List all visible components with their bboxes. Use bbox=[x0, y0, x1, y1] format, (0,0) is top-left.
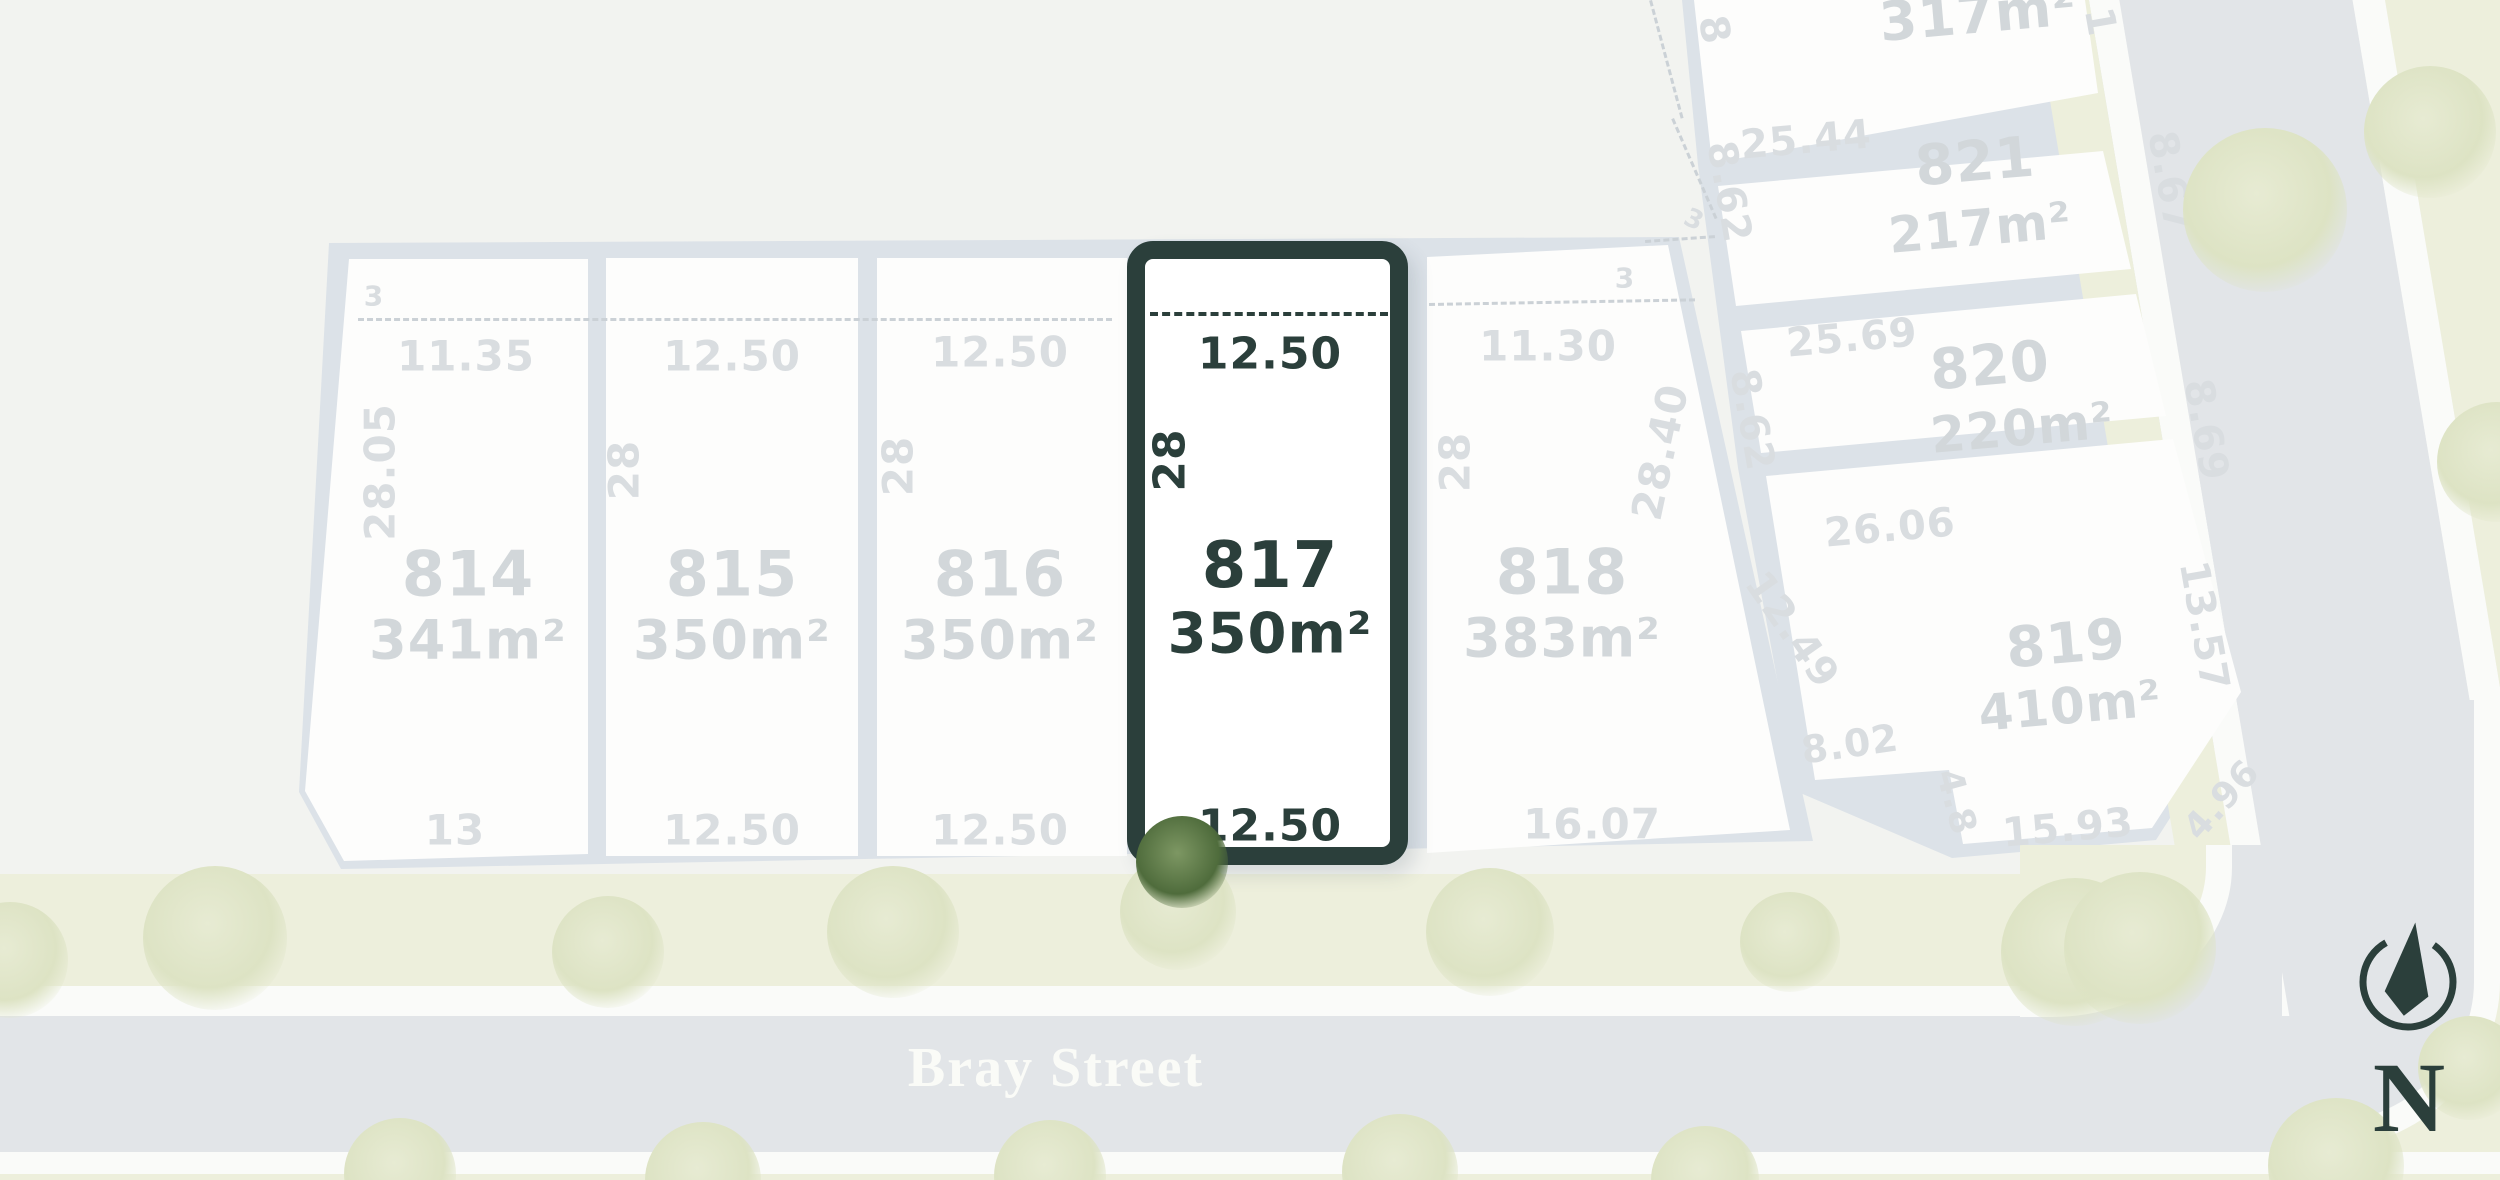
lot-815-number: 815 bbox=[666, 538, 798, 611]
lot-818-front-dim: 16.07 bbox=[1523, 800, 1661, 849]
lot-815-front-dim: 12.50 bbox=[663, 806, 801, 855]
lot-815-side-dim: 28 bbox=[600, 440, 649, 500]
tree-icon bbox=[1136, 816, 1228, 908]
lot-816-top-dim: 12.50 bbox=[931, 328, 1069, 377]
lot-815-top-dim: 12.50 bbox=[663, 332, 801, 381]
lot-821-number: 821 bbox=[1912, 124, 2037, 199]
tree-icon bbox=[2364, 66, 2496, 198]
setback-line-814-816 bbox=[358, 318, 1112, 321]
lot-821-setback-dim: 3 bbox=[1679, 202, 1709, 237]
lot-818-setback-dim: 3 bbox=[1615, 262, 1635, 295]
tree-icon bbox=[552, 896, 664, 1008]
lot-814-area: 341m² bbox=[369, 609, 567, 672]
lot-816-area: 350m² bbox=[901, 609, 1099, 672]
lot-817-area: 350m² bbox=[1168, 602, 1373, 667]
lot-817-side-dim: 28 bbox=[1145, 428, 1196, 491]
lot-820-number: 820 bbox=[1927, 328, 2052, 403]
tree-icon bbox=[2183, 128, 2347, 292]
lot-814-number: 814 bbox=[402, 538, 534, 611]
lot-814-setback-dim: 3 bbox=[364, 280, 384, 313]
lot-817-number: 817 bbox=[1202, 529, 1339, 603]
setback-line-partial-lot bbox=[1649, 0, 1683, 119]
lot-816-side-dim: 28 bbox=[874, 436, 923, 496]
lot-815-area: 350m² bbox=[633, 609, 831, 672]
lot-814-front-dim: 13 bbox=[425, 806, 485, 855]
tree-icon bbox=[1426, 868, 1554, 996]
tree-icon bbox=[827, 866, 959, 998]
north-compass bbox=[2350, 916, 2466, 1038]
street-name-label: Bray Street bbox=[846, 1036, 1266, 1100]
lot-plan-canvas: 3 11.35 28.05 814 341m² 13 12.50 28 815 … bbox=[0, 0, 2500, 1180]
tree-icon bbox=[143, 866, 287, 1010]
north-letter: N bbox=[2354, 1040, 2464, 1155]
lot-816-front-dim: 12.50 bbox=[931, 806, 1069, 855]
compass-icon bbox=[2350, 916, 2466, 1038]
tree-icon bbox=[2064, 872, 2216, 1024]
lot-818-top-dim: 11.30 bbox=[1479, 322, 1617, 371]
lot-819-number: 819 bbox=[2003, 606, 2128, 681]
lot-816-number: 816 bbox=[934, 538, 1066, 611]
lot-818-number: 818 bbox=[1496, 536, 1628, 609]
lot-814-top-dim: 11.35 bbox=[397, 332, 535, 381]
setback-line-817 bbox=[1150, 312, 1388, 316]
lot-818-side-dim: 28 bbox=[1431, 432, 1480, 492]
lot-814-side-dim: 28.05 bbox=[356, 403, 405, 541]
lot-817-top-dim: 12.50 bbox=[1198, 329, 1342, 380]
lot-818-area: 383m² bbox=[1463, 607, 1661, 670]
tree-icon bbox=[1740, 892, 1840, 992]
